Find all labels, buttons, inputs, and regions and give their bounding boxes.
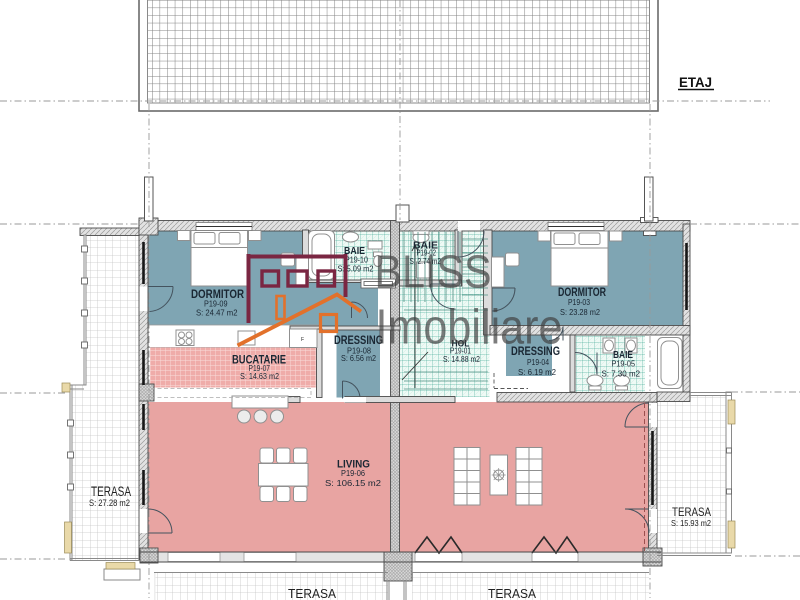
svg-text:P19-04: P19-04 (527, 357, 549, 367)
svg-text:S: 14.63 m2: S: 14.63 m2 (240, 371, 279, 381)
svg-text:S: 5.09 m2: S: 5.09 m2 (338, 264, 374, 274)
svg-text:S: 24.47 m2: S: 24.47 m2 (196, 308, 238, 318)
svg-text:TERASA: TERASA (488, 587, 537, 600)
svg-text:TERASA: TERASA (91, 484, 131, 499)
svg-text:S: 23.28 m2: S: 23.28 m2 (560, 307, 600, 317)
svg-text:ETAJ: ETAJ (679, 75, 712, 90)
svg-text:P19-06: P19-06 (341, 468, 365, 478)
svg-text:F: F (301, 337, 304, 343)
svg-text:S: 6.19 m2: S: 6.19 m2 (518, 367, 556, 377)
svg-text:S: 15.93 m2: S: 15.93 m2 (671, 518, 711, 528)
svg-text:S: 14.88 m2: S: 14.88 m2 (443, 354, 480, 364)
svg-text:BLISS: BLISS (375, 246, 492, 298)
svg-text:Imobiliare: Imobiliare (376, 301, 563, 355)
svg-text:TERASA: TERASA (288, 587, 337, 600)
svg-text:S: 106.15 m2: S: 106.15 m2 (325, 478, 381, 488)
svg-text:S: 27.28 m2: S: 27.28 m2 (89, 498, 130, 508)
svg-text:P19-03: P19-03 (568, 297, 590, 307)
svg-text:S: 6.56 m2: S: 6.56 m2 (341, 353, 376, 363)
svg-text:S: 7.30 m2: S: 7.30 m2 (602, 369, 641, 379)
svg-text:P19-05: P19-05 (612, 359, 636, 369)
